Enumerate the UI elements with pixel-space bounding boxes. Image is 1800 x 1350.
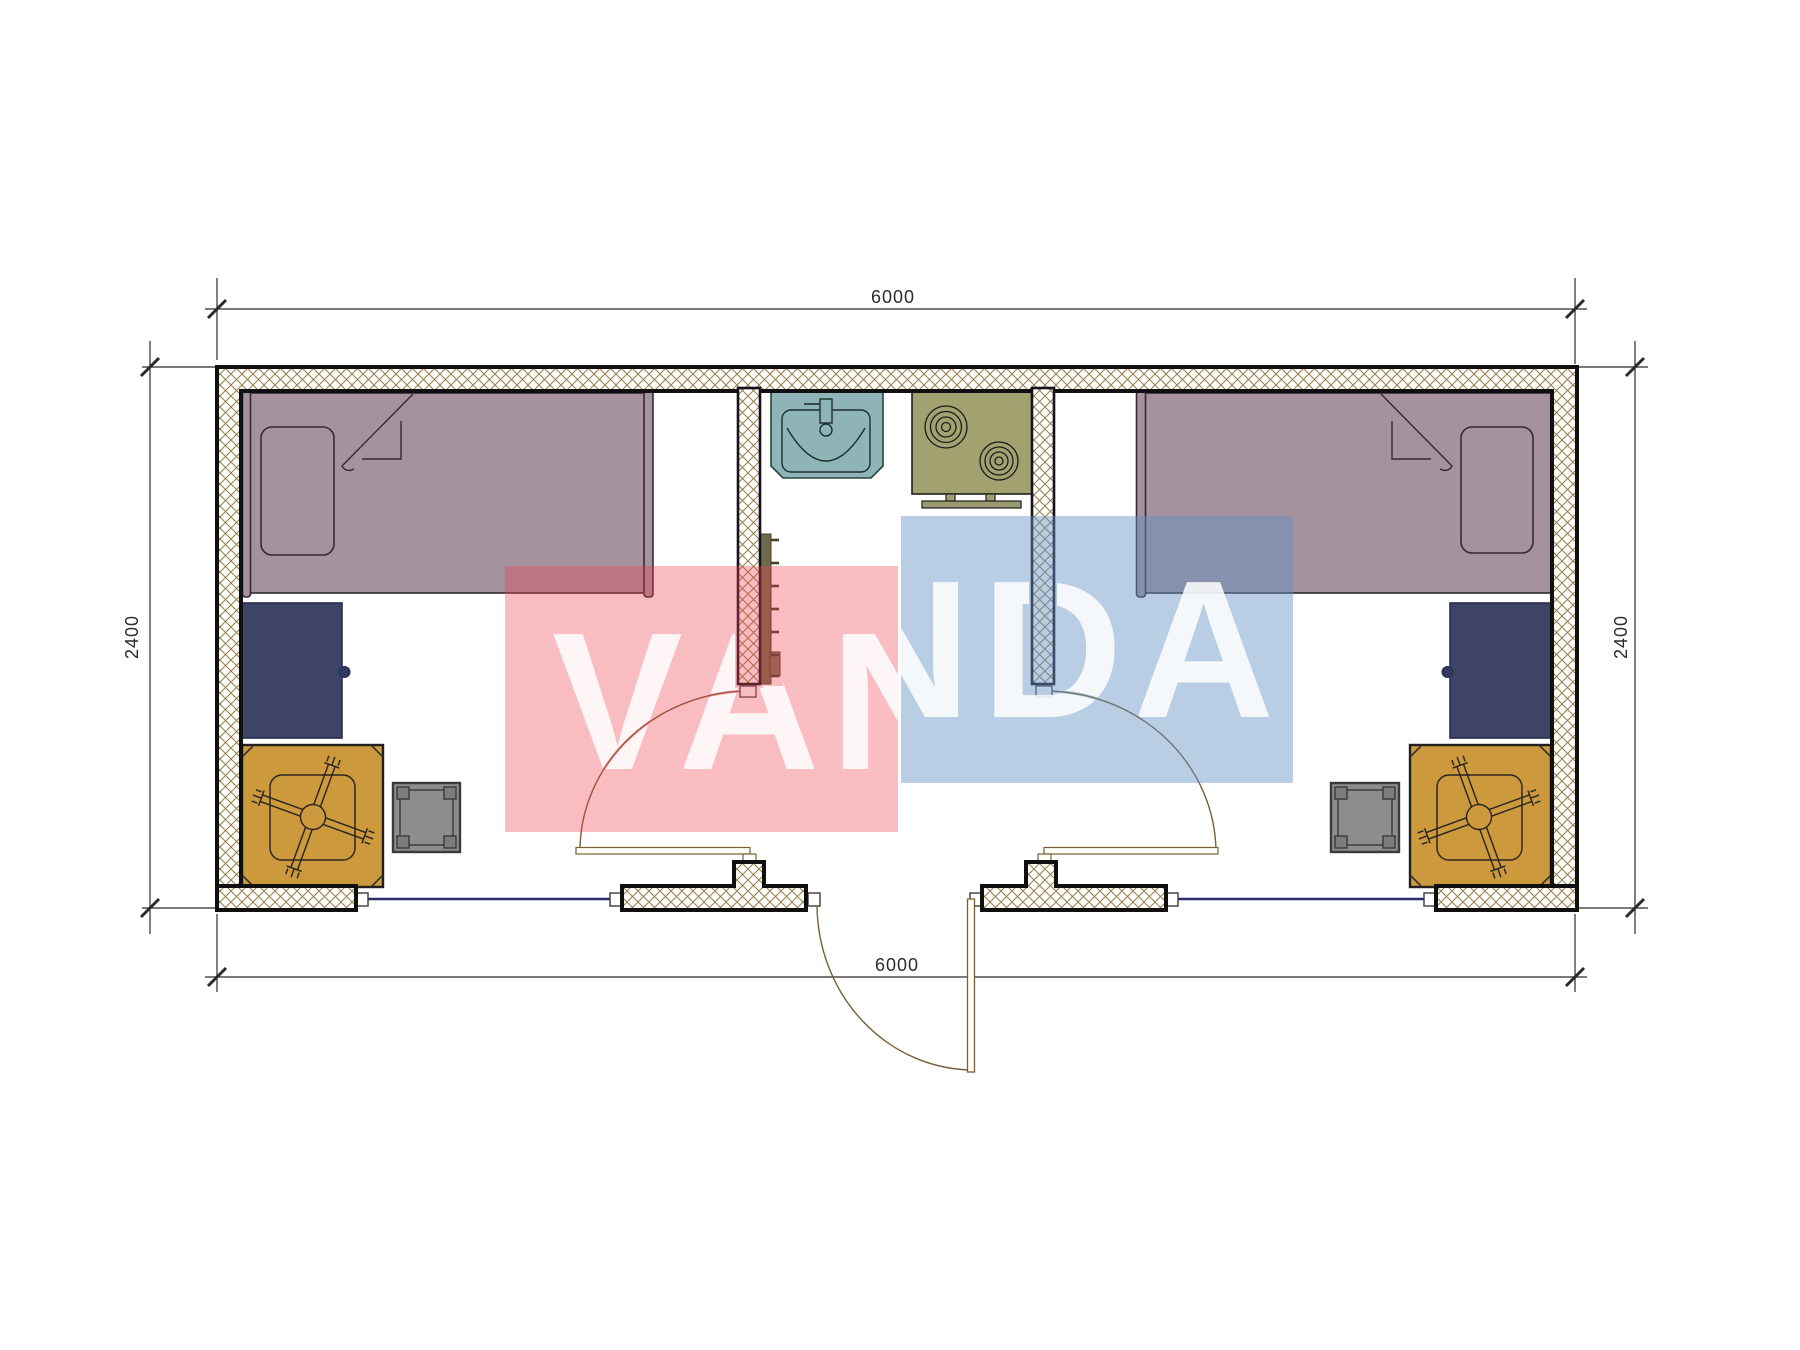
svg-text:2400: 2400 <box>1611 615 1631 659</box>
svg-text:6000: 6000 <box>871 287 915 307</box>
svg-text:2400: 2400 <box>122 615 142 659</box>
svg-text:6000: 6000 <box>875 955 919 975</box>
